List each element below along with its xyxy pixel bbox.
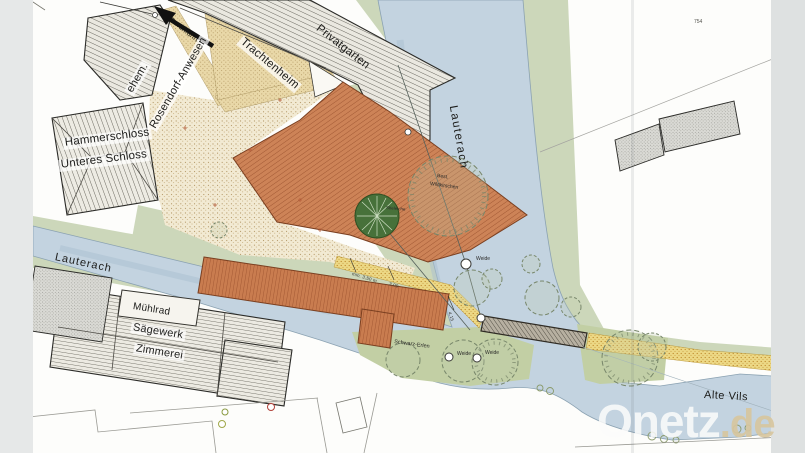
parcel-number-754: 754: [694, 20, 702, 25]
scan-margin-left: [0, 0, 33, 453]
building-zimmerei-annex: [217, 340, 292, 406]
building-hut-orange: [358, 309, 394, 348]
watermark-suffix: .de: [720, 402, 775, 447]
onetz-watermark: Onetz.de: [597, 394, 775, 448]
site-plan-scan: Privatgarten Trachtenheim ehem. Rosendor…: [0, 0, 805, 453]
vegetation-label-weide-3: Weide: [485, 351, 499, 356]
scan-margin-right: [771, 0, 805, 453]
building-far-left: [25, 266, 112, 342]
watermark-brand: Onetz: [597, 394, 720, 448]
vegetation-label-weide-1: Weide: [476, 257, 490, 262]
dark-tree: [355, 194, 399, 238]
site-plan-map: [0, 0, 805, 453]
paper-fold-line: [631, 0, 634, 453]
vegetation-label-weide-2: Weide: [457, 352, 471, 357]
